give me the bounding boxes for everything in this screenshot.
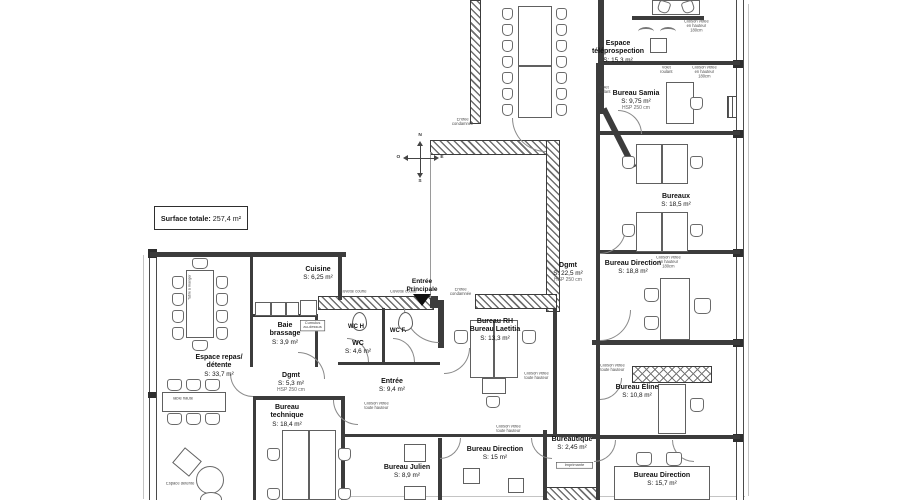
room-label-dgmt2: Dgmt S: 5,3 m² HSP 250 cm <box>270 372 312 394</box>
dimension-line <box>143 255 144 499</box>
desk <box>463 468 480 484</box>
annotation-cloison-th: Cloison vitrée toute hauteur <box>600 364 625 373</box>
annotation-volet: Volet roulant <box>598 86 610 95</box>
surface-total-label: Surface totale: <box>161 214 211 223</box>
desk <box>282 430 309 500</box>
round-table <box>196 466 224 494</box>
compass-east: E <box>440 155 443 160</box>
room-label-eline: Bureau Éline S: 10,8 m² <box>606 384 668 400</box>
wall <box>382 308 385 364</box>
annotation-condamnee: Entrée condamnée <box>450 288 471 297</box>
kitchen-counter <box>255 302 271 316</box>
chair <box>502 24 513 36</box>
annotation-cumulus: Cumulus au-dessus <box>300 320 325 331</box>
chair <box>216 327 228 340</box>
desk <box>309 430 336 500</box>
dimension-line <box>748 4 749 496</box>
chair <box>694 298 711 314</box>
wall <box>150 252 346 257</box>
chair <box>502 8 513 20</box>
room-label-dgmt1: Dgmt S: 22,5 m² HSP 250 cm <box>548 262 588 284</box>
desk <box>404 444 426 462</box>
chair <box>556 40 567 52</box>
exterior-wall-left <box>149 252 157 500</box>
annotation-cloison180: Cloison vitrée en hauteur 180cm <box>692 66 717 79</box>
door-arc <box>618 110 642 134</box>
conference-table <box>518 66 552 118</box>
chair <box>186 413 201 425</box>
room-label-direction2: Bureau Direction S: 15,7 m² <box>616 472 708 488</box>
chair <box>267 488 280 500</box>
chair <box>556 56 567 68</box>
surface-total-box: Surface totale: 257,4 m² <box>154 206 248 230</box>
annotation-cloison180: Cloison vitrée en hauteur 180cm <box>684 20 709 33</box>
chair <box>486 396 500 408</box>
chair <box>167 413 182 425</box>
high-table <box>162 392 226 412</box>
chair <box>556 8 567 20</box>
chair <box>267 448 280 461</box>
door-arc <box>333 400 358 425</box>
pouf <box>200 492 222 500</box>
lounge-chair <box>660 27 676 36</box>
chair <box>192 258 208 269</box>
chair <box>205 379 220 391</box>
room-label-wch: WC H <box>344 324 368 331</box>
chair <box>172 276 184 289</box>
desk <box>662 212 688 252</box>
room-label-julien: Bureau Julien S: 8,9 m² <box>382 464 432 480</box>
wall <box>553 308 557 436</box>
desk <box>662 144 688 184</box>
kitchen-appliance <box>300 300 317 316</box>
chair <box>216 310 228 323</box>
wall <box>253 396 345 400</box>
hatched-wall <box>475 294 557 309</box>
conference-table <box>518 6 552 66</box>
room-label-direction3: Bureau Direction S: 15 m² <box>462 446 528 462</box>
chair <box>205 413 220 425</box>
chair <box>167 379 182 391</box>
chair <box>690 97 703 110</box>
radiator <box>727 96 737 118</box>
desk <box>660 278 690 340</box>
room-label-bureaux: Bureaux S: 18,5 m² <box>648 193 704 209</box>
floor-plan-canvas: Table à manger Table haute Espace détent… <box>0 0 900 500</box>
compass-west: O <box>396 155 400 160</box>
wall <box>592 435 740 439</box>
room-label-wcf: WC F. <box>386 328 410 335</box>
room-label-entree: Entrée S: 9,4 m² <box>374 378 410 394</box>
annotation-cuvette: Cuvette courte <box>340 290 367 294</box>
wall <box>253 396 256 500</box>
room-label-repas: Espace repas/ détente S: 33,7 m² <box>188 354 250 378</box>
imprimante-box: Imprimante <box>556 462 593 469</box>
chair <box>644 316 659 330</box>
lounge-chair <box>638 27 654 36</box>
chair <box>192 340 208 351</box>
kitchen-counter <box>286 302 299 316</box>
surface-total-value: 257,4 m² <box>213 214 241 223</box>
annotation-condamnee: Entrée condamnée <box>452 118 473 127</box>
wall-junction <box>148 392 156 398</box>
door-arc <box>600 310 631 341</box>
annotation-cloison-th: Cloison vitrée toute hauteur <box>496 425 521 434</box>
chair <box>338 448 351 461</box>
desk <box>404 486 426 500</box>
room-label-rh: Bureau RH Bureau Laetitia S: 13,3 m² <box>462 318 528 342</box>
espace-detente-label: Espace détente <box>166 482 194 486</box>
chair <box>690 398 704 412</box>
chair <box>556 72 567 84</box>
desk <box>636 144 662 184</box>
room-label-teleprospection: Espace téléprospection S: 15,3 m² <box>590 40 646 64</box>
chair <box>502 40 513 52</box>
chair <box>502 72 513 84</box>
annotation-cloison-th: Cloison vitrée toute hauteur <box>524 372 549 381</box>
chair <box>636 452 652 466</box>
annotation-cloison-th: Cloison vitrée toute hauteur <box>364 402 389 411</box>
chair <box>172 327 184 340</box>
chair <box>556 104 567 116</box>
hatched-wall <box>470 0 481 124</box>
chair <box>690 224 703 237</box>
entrance-arrow-icon <box>413 294 431 306</box>
chair <box>216 293 228 306</box>
chair <box>172 310 184 323</box>
door-arc <box>440 438 461 459</box>
wall <box>250 252 253 367</box>
hatched-wall <box>546 487 598 500</box>
room-label-cuisine: Cuisine S: 6,25 m² <box>296 266 340 282</box>
annotation-volet: Volet roulant <box>660 66 672 75</box>
chair <box>622 156 635 169</box>
kitchen-counter <box>271 302 286 316</box>
chair <box>186 379 201 391</box>
room-label-bureautique: Bureautique S: 2,45 m² <box>546 436 598 452</box>
desk <box>636 212 662 252</box>
compass-north: N <box>418 133 421 138</box>
chair <box>690 156 703 169</box>
wall <box>430 296 438 308</box>
desk <box>508 478 524 493</box>
chair <box>666 452 682 466</box>
chair <box>502 104 513 116</box>
side-table <box>482 378 506 394</box>
chair <box>172 293 184 306</box>
chair <box>502 56 513 68</box>
chair <box>338 488 351 500</box>
chair <box>644 288 659 302</box>
crosshatch-zone <box>632 366 712 383</box>
chair <box>556 24 567 36</box>
courtyard-edge <box>430 152 431 298</box>
room-label-samia: Bureau Samia S: 9,75 m² HSP 250 cm <box>608 90 664 112</box>
annotation-cuvette: Cuvette courte <box>390 290 417 294</box>
table-a-manger-label: Table à manger <box>188 274 192 300</box>
compass-south: S <box>418 179 421 184</box>
chair <box>502 88 513 100</box>
chair <box>622 224 635 237</box>
annotation-cloison180: Cloison vitrée en hauteur 180cm <box>656 256 681 269</box>
room-label-wc: WC S: 4,6 m² <box>340 340 376 356</box>
side-table <box>650 38 667 53</box>
hatched-wall <box>546 140 560 312</box>
room-label-technique: Bureau technique S: 18,4 m² <box>262 404 312 428</box>
door-arc <box>444 348 470 374</box>
wall <box>338 362 440 365</box>
door-arc <box>393 338 415 362</box>
wall <box>592 340 740 345</box>
chair <box>556 88 567 100</box>
chair <box>216 276 228 289</box>
table-haute-label: Table haute <box>172 397 193 401</box>
